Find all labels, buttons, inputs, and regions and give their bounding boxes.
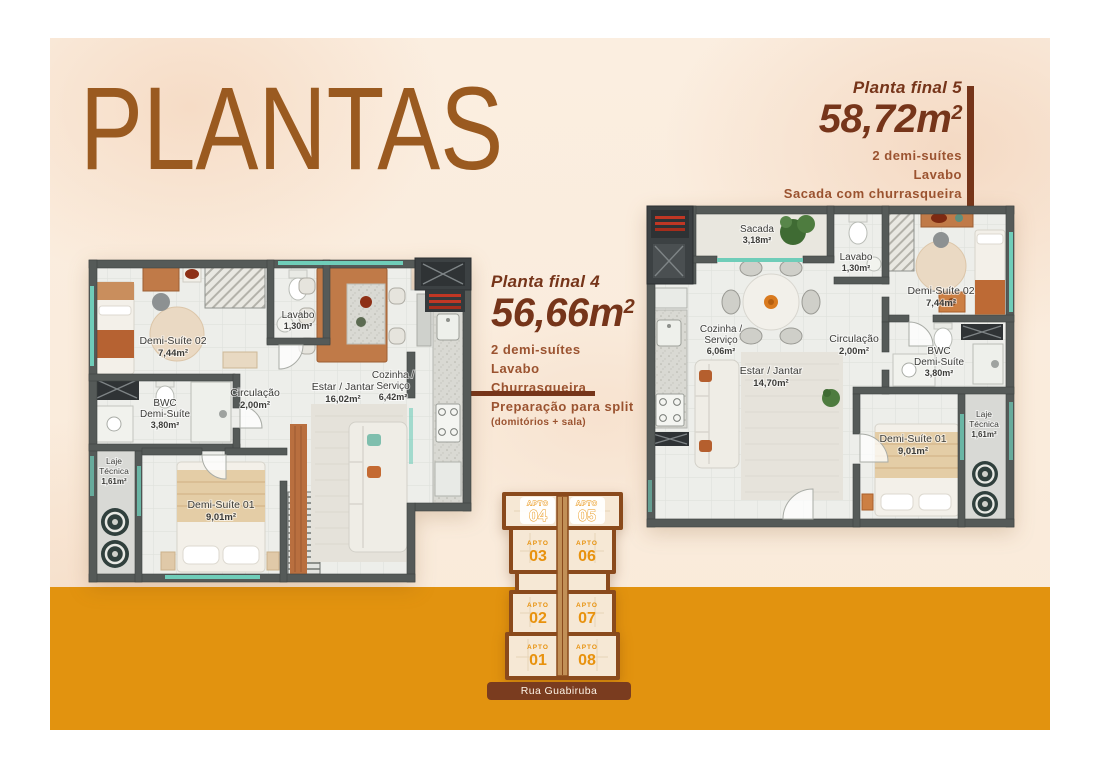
plan4-underline-bar [463, 391, 595, 396]
room-label-circulacao: Circulação [230, 387, 280, 399]
room-label-cozinha-1: Cozinha / [700, 324, 742, 335]
plan4-size-sup: 2 [624, 296, 635, 318]
svg-text:APTO: APTO [576, 644, 598, 651]
street-name: Rua Guabiruba [521, 685, 597, 697]
kitchen-fixtures [651, 288, 689, 446]
room-label-bwc-2: Demi-Suíte [140, 409, 190, 420]
room-area-cozinha: 6,06m² [707, 346, 736, 356]
room-area-laje: 1,61m² [101, 477, 127, 486]
room-label-demi-suite-01: Demi-Suíte 01 [187, 499, 254, 511]
svg-text:APTO: APTO [527, 501, 549, 508]
plan4-feature: 2 demi-suítes [491, 340, 634, 359]
room-area-lavabo: 1,30m² [842, 263, 871, 273]
room-area-lavabo: 1,30m² [284, 321, 313, 331]
plan5-size-sup: 2 [951, 102, 962, 124]
room-area-bwc: 3,80m² [925, 368, 954, 378]
svg-text:01: 01 [529, 652, 547, 669]
room-area-circulacao: 2,00m² [240, 400, 270, 411]
plan5-heading: Planta final 5 [784, 78, 962, 98]
room-area-demi-suite-02: 7,44m² [158, 348, 188, 359]
svg-text:APTO: APTO [527, 602, 549, 609]
building-key-plan: APTO 04 APTO 05 APTO 03 APTO 06 APTO 02 … [500, 491, 625, 681]
unit-07: APTO 07 [576, 602, 598, 627]
room-label-cozinha-2: Serviço [704, 335, 738, 346]
plan5-connector-bar [967, 86, 974, 214]
svg-text:03: 03 [529, 548, 547, 565]
svg-text:APTO: APTO [576, 602, 598, 609]
plan4-heading: Planta final 4 [491, 272, 634, 292]
room-label-lavabo: Lavabo [282, 310, 315, 321]
room-label-laje-2: Técnica [99, 466, 129, 476]
room-label-cozinha-2: Serviço [376, 381, 410, 392]
unit-01: APTO 01 [527, 644, 549, 669]
plan4-feature: Lavabo [491, 359, 634, 378]
unit-03: APTO 03 [527, 540, 549, 565]
room-label-circulacao: Circulação [829, 333, 879, 345]
plan5-size-value: 58,72m [819, 97, 952, 141]
plan5-feature: Sacada com churrasqueira [784, 184, 962, 203]
room-label-laje-2: Técnica [969, 419, 999, 429]
plan4-note: (domitórios + sala) [491, 417, 634, 428]
unit-04: APTO 04 [527, 501, 549, 526]
unit-05: APTO 05 [576, 501, 598, 526]
svg-text:08: 08 [578, 652, 596, 669]
unit-06: APTO 06 [576, 540, 598, 565]
room-area-cozinha: 6,42m² [379, 392, 408, 402]
room-area-sacada: 3,18m² [743, 235, 772, 245]
page-title: PLANTAS [80, 70, 503, 188]
plan5-feature: Lavabo [784, 165, 962, 184]
unit-02: APTO 02 [527, 602, 549, 627]
svg-text:APTO: APTO [527, 644, 549, 651]
svg-text:05: 05 [578, 508, 596, 525]
svg-text:APTO: APTO [576, 501, 598, 508]
plan5-feature: 2 demi-suítes [784, 146, 962, 165]
room-label-bwc-1: BWC [927, 346, 950, 357]
room-area-circulacao: 2,00m² [839, 346, 869, 357]
room-area-demi-suite-02: 7,44m² [926, 298, 956, 309]
room-label-estar: Estar / Jantar [740, 365, 803, 377]
svg-text:06: 06 [578, 548, 596, 565]
plan4-feature: Preparação para split [491, 397, 634, 416]
room-label-demi-suite-01: Demi-Suíte 01 [879, 433, 946, 445]
street-banner: Rua Guabiruba [487, 682, 631, 700]
room-label-laje-1: Laje [976, 409, 992, 419]
svg-text:07: 07 [578, 610, 596, 627]
room-label-demi-suite-02: Demi-Suíte 02 [907, 285, 974, 297]
room-area-demi-suite-01: 9,01m² [206, 512, 236, 523]
room-area-bwc: 3,80m² [151, 420, 180, 430]
plan4-info-block: Planta final 4 56,66m2 2 demi-suítes Lav… [491, 272, 634, 428]
room-label-cozinha-1: Cozinha / [372, 370, 414, 381]
room-label-bwc-2: Demi-Suíte [914, 357, 964, 368]
room-label-sacada: Sacada [740, 224, 774, 235]
room-area-estar: 16,02m² [325, 394, 360, 405]
room-area-estar: 14,70m² [753, 378, 788, 389]
svg-text:04: 04 [529, 508, 547, 525]
svg-text:02: 02 [529, 610, 547, 627]
floor-plan-4: Demi-Suíte 02 7,44m² Lavabo 1,30m² Circu… [85, 256, 475, 586]
service-shaft [647, 206, 693, 284]
room-label-estar: Estar / Jantar [312, 381, 375, 393]
room-label-lavabo: Lavabo [840, 252, 873, 263]
floor-plan-5: Sacada 3,18m² Lavabo 1,30m² Demi-Suíte 0… [643, 202, 1018, 537]
plan4-size: 56,66m2 [491, 292, 634, 334]
room-area-laje: 1,61m² [971, 430, 997, 439]
brochure-page: PLANTAS Planta final 4 56,66m2 2 demi-su… [50, 38, 1050, 730]
room-label-laje-1: Laje [106, 456, 122, 466]
plan4-features: 2 demi-suítes Lavabo Churrasqueira Prepa… [491, 340, 634, 416]
plan5-size: 58,72m2 [784, 98, 962, 140]
svg-text:APTO: APTO [576, 540, 598, 547]
room-label-bwc-1: BWC [153, 398, 176, 409]
room-area-demi-suite-01: 9,01m² [898, 446, 928, 457]
unit-08: APTO 08 [576, 644, 598, 669]
plan4-size-value: 56,66m [491, 291, 624, 335]
room-label-demi-suite-02: Demi-Suíte 02 [139, 335, 206, 347]
svg-text:APTO: APTO [527, 540, 549, 547]
